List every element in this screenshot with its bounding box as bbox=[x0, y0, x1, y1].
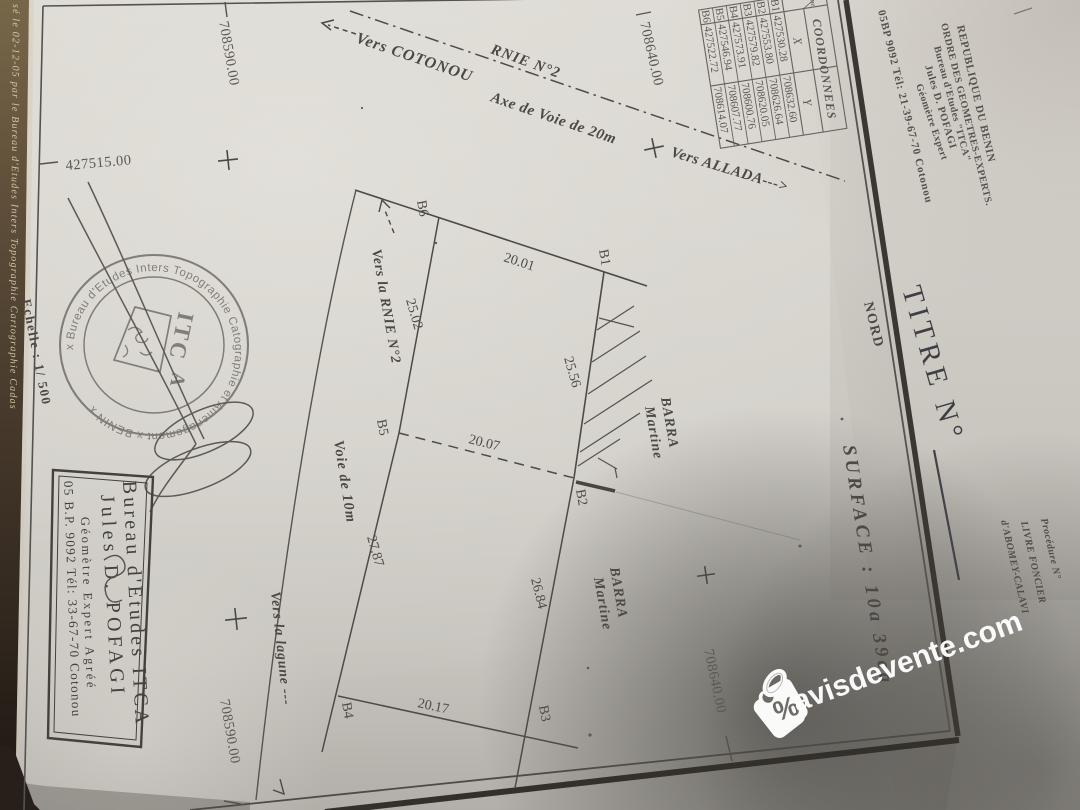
svg-text:B2: B2 bbox=[572, 488, 590, 507]
svg-text:B4: B4 bbox=[338, 701, 356, 720]
svg-text:B4: B4 bbox=[726, 5, 740, 20]
svg-text:B1: B1 bbox=[768, 0, 782, 13]
svg-text:B2: B2 bbox=[754, 0, 768, 15]
svg-text:B3: B3 bbox=[535, 704, 553, 723]
svg-text:B6: B6 bbox=[699, 9, 713, 24]
svg-text:B1: B1 bbox=[595, 248, 613, 267]
svg-text:B6: B6 bbox=[413, 199, 431, 218]
svg-text:B5: B5 bbox=[373, 418, 391, 437]
svg-text:B5: B5 bbox=[713, 7, 727, 22]
svg-text:B3: B3 bbox=[740, 3, 754, 18]
